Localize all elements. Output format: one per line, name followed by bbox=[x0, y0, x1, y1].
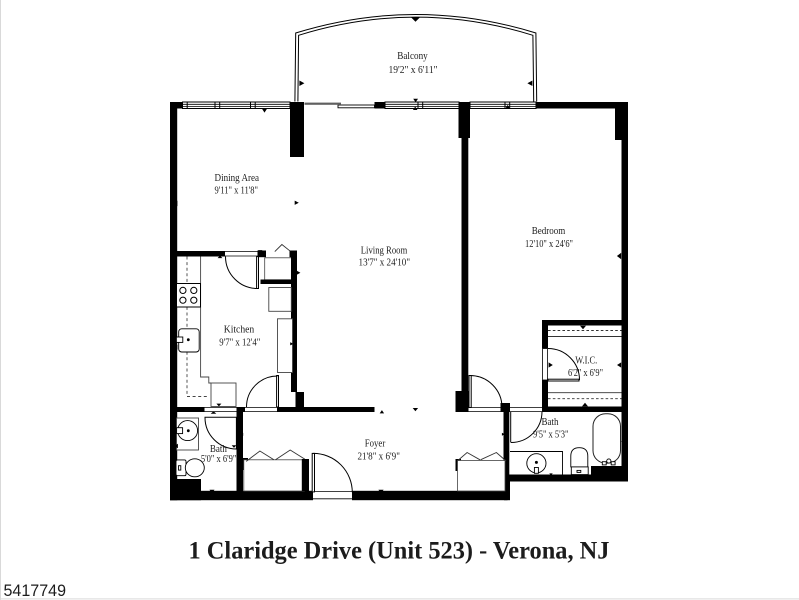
svg-text:5'0" x 6'9": 5'0" x 6'9" bbox=[201, 453, 237, 465]
svg-text:5417749: 5417749 bbox=[4, 581, 67, 600]
svg-text:Kitchen: Kitchen bbox=[224, 324, 255, 336]
svg-text:9'11" x 11'8": 9'11" x 11'8" bbox=[215, 185, 259, 197]
svg-text:9'5" x 5'3": 9'5" x 5'3" bbox=[533, 428, 569, 440]
svg-text:19'2" x 6'11": 19'2" x 6'11" bbox=[389, 64, 438, 76]
svg-text:13'7" x 24'10": 13'7" x 24'10" bbox=[359, 256, 411, 268]
svg-text:Balcony: Balcony bbox=[397, 50, 428, 62]
svg-text:6'2" x 6'9": 6'2" x 6'9" bbox=[568, 367, 603, 379]
svg-text:1 Claridge Drive (Unit 523) -: 1 Claridge Drive (Unit 523) - Verona, NJ bbox=[189, 538, 610, 565]
svg-text:12'10" x 24'6": 12'10" x 24'6" bbox=[525, 238, 573, 250]
svg-text:Foyer: Foyer bbox=[365, 438, 386, 450]
svg-text:W.I.C.: W.I.C. bbox=[575, 354, 597, 366]
svg-text:9'7" x 12'4": 9'7" x 12'4" bbox=[219, 337, 260, 349]
svg-text:21'8" x 6'9": 21'8" x 6'9" bbox=[357, 451, 400, 463]
svg-text:Dining Area: Dining Area bbox=[215, 172, 260, 184]
svg-text:Bedroom: Bedroom bbox=[532, 225, 566, 237]
svg-text:Bath: Bath bbox=[542, 416, 559, 428]
svg-text:Living Room: Living Room bbox=[361, 245, 408, 257]
